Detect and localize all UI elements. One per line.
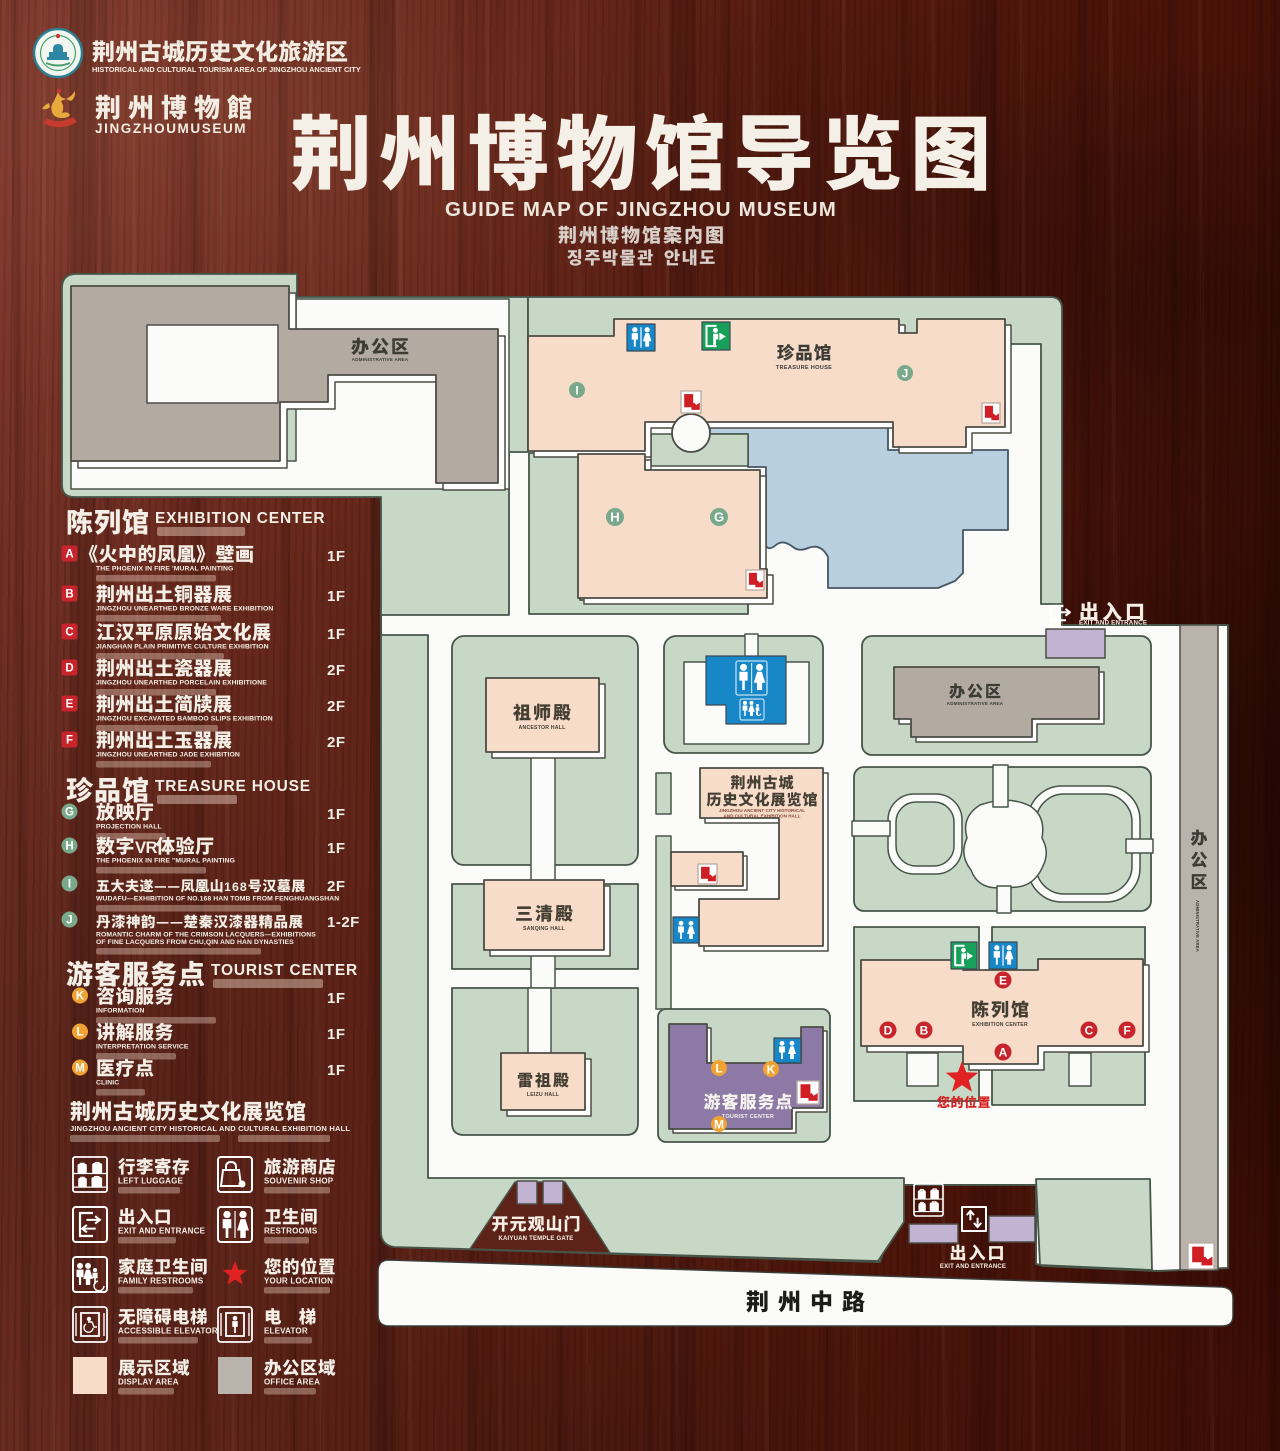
svg-text:JINGZHOU ANCIENT CITY HISTORIC: JINGZHOU ANCIENT CITY HISTORICAL — [719, 808, 805, 813]
svg-text:JINGZHOU UNEARTHED BRONZE WARE: JINGZHOU UNEARTHED BRONZE WARE EXHIBITIO… — [96, 606, 273, 613]
svg-text:8: 8 — [240, 880, 247, 894]
svg-text:1F: 1F — [327, 806, 346, 823]
svg-text:1F: 1F — [327, 990, 346, 1007]
svg-text:JINGZHOU UNEARTHED JADE EXHIBI: JINGZHOU UNEARTHED JADE EXHIBITION — [96, 752, 240, 759]
svg-text:DISPLAY AREA: DISPLAY AREA — [118, 1378, 179, 1387]
svg-text:ADMINISTRATIVE AREA: ADMINISTRATIVE AREA — [1195, 900, 1200, 952]
svg-text:H: H — [610, 510, 619, 525]
svg-text:THE PHOENIX IN FIRE 'MURAL PAI: THE PHOENIX IN FIRE 'MURAL PAINTING — [96, 566, 233, 573]
svg-text:HISTORICAL AND CULTURAL TOURIS: HISTORICAL AND CULTURAL TOURISM AREA OF … — [92, 65, 361, 74]
svg-text:J: J — [902, 366, 909, 380]
svg-text:FAMILY RESTROOMS: FAMILY RESTROOMS — [118, 1277, 204, 1286]
svg-text:1F: 1F — [327, 548, 346, 565]
svg-text:1-2F: 1-2F — [327, 914, 360, 931]
svg-text:KAIYUAN TEMPLE GATE: KAIYUAN TEMPLE GATE — [498, 1236, 573, 1242]
svg-text:ACCESSIBLE ELEVATOR: ACCESSIBLE ELEVATOR — [118, 1327, 218, 1336]
svg-text:ROMANTIC CHARM OF THE CRIMSON: ROMANTIC CHARM OF THE CRIMSON LACQUERS—E… — [96, 932, 316, 939]
svg-text:1F: 1F — [327, 588, 346, 605]
svg-text:K: K — [767, 1062, 776, 1076]
svg-text:K: K — [76, 991, 85, 1003]
svg-text:EXHIBITION CENTER: EXHIBITION CENTER — [972, 1022, 1028, 1028]
svg-text:EXIT AND ENTRANCE: EXIT AND ENTRANCE — [1079, 620, 1147, 627]
svg-text:A: A — [999, 1045, 1008, 1059]
svg-text:OF FINE LACQUERS FROM CHU,QIN: OF FINE LACQUERS FROM CHU,QIN AND HAN DY… — [96, 939, 294, 946]
svg-text:2F: 2F — [327, 698, 346, 715]
svg-text:2F: 2F — [327, 878, 346, 895]
svg-text:B: B — [920, 1023, 929, 1037]
svg-text:1F: 1F — [327, 1062, 346, 1079]
svg-text:TREASURE HOUSE: TREASURE HOUSE — [155, 778, 311, 795]
svg-text:JINGZHOU EXCAVATED BAMBOO SLIP: JINGZHOU EXCAVATED BAMBOO SLIPS EXHIBITI… — [96, 716, 273, 723]
svg-text:J: J — [66, 915, 72, 927]
svg-text:TREASURE HOUSE: TREASURE HOUSE — [776, 365, 832, 371]
svg-text:M: M — [714, 1117, 724, 1131]
svg-text:SOUVENIR SHOP: SOUVENIR SHOP — [264, 1177, 334, 1186]
svg-text:EXIT AND ENTRANCE: EXIT AND ENTRANCE — [118, 1227, 206, 1236]
svg-text:C: C — [1085, 1023, 1094, 1037]
svg-text:TOURIST CENTER: TOURIST CENTER — [211, 962, 358, 979]
svg-text:1F: 1F — [327, 840, 346, 857]
svg-text:GUIDE MAP OF JINGZHOU MUSEUM: GUIDE MAP OF JINGZHOU MUSEUM — [445, 198, 837, 221]
svg-text:M: M — [75, 1063, 85, 1075]
svg-text:E: E — [999, 973, 1007, 987]
svg-text:2F: 2F — [327, 734, 346, 751]
svg-text:THE PHOENIX IN FIRE "MURAL PAI: THE PHOENIX IN FIRE "MURAL PAINTING — [96, 858, 235, 865]
svg-text:6: 6 — [232, 880, 239, 894]
svg-text:TOURIST CENTER: TOURIST CENTER — [722, 1114, 774, 1120]
svg-text:OFFICE AREA: OFFICE AREA — [264, 1378, 320, 1387]
svg-text:ELEVATOR: ELEVATOR — [264, 1327, 308, 1336]
svg-text:R: R — [146, 838, 158, 857]
svg-text:ANCESTOR HALL: ANCESTOR HALL — [519, 725, 567, 731]
svg-text:B: B — [65, 589, 73, 601]
svg-text:1F: 1F — [327, 626, 346, 643]
svg-text:F: F — [66, 735, 73, 747]
svg-text:F: F — [1123, 1023, 1130, 1037]
svg-text:D: D — [884, 1023, 893, 1037]
svg-text:CLINIC: CLINIC — [96, 1080, 119, 1087]
svg-text:PROJECTION HALL: PROJECTION HALL — [96, 824, 162, 831]
svg-text:JINGZHOU UNEARTHED PORCELAIN E: JINGZHOU UNEARTHED PORCELAIN EXHIBITIONE — [96, 680, 267, 687]
svg-text:1: 1 — [224, 880, 231, 894]
svg-text:EXIT AND ENTRANCE: EXIT AND ENTRANCE — [940, 1264, 1006, 1270]
svg-text:ADMINISTRATIVE AREA: ADMINISTRATIVE AREA — [352, 357, 409, 362]
svg-text:INFORMATION: INFORMATION — [96, 1008, 145, 1015]
svg-text:L: L — [715, 1061, 722, 1075]
svg-text:EXHIBITION CENTER: EXHIBITION CENTER — [155, 510, 325, 527]
svg-text:JINGZHOUMUSEUM: JINGZHOUMUSEUM — [95, 121, 247, 136]
svg-text:SANQING HALL: SANQING HALL — [523, 926, 566, 932]
svg-text:E: E — [66, 699, 74, 711]
svg-text:RESTROOMS: RESTROOMS — [264, 1227, 318, 1236]
svg-text:JINGZHOU ANCIENT CITY HISTORIC: JINGZHOU ANCIENT CITY HISTORICAL AND CUL… — [70, 1124, 350, 1133]
svg-text:LEFT LUGGAGE: LEFT LUGGAGE — [118, 1177, 184, 1186]
svg-text:WUDAFU—EXHIBITION OF NO.168 HA: WUDAFU—EXHIBITION OF NO.168 HAN TOMB FRO… — [96, 896, 339, 903]
svg-text:C: C — [65, 627, 73, 639]
svg-text:D: D — [65, 663, 73, 675]
svg-text:I: I — [68, 879, 71, 891]
svg-text:G: G — [65, 807, 74, 819]
svg-text:L: L — [76, 1027, 83, 1039]
svg-text:ADMINISTRATIVE AREA: ADMINISTRATIVE AREA — [947, 701, 1004, 706]
svg-text:2F: 2F — [327, 662, 346, 679]
svg-text:INTERPRETATION SERVICE: INTERPRETATION SERVICE — [96, 1044, 189, 1051]
svg-text:YOUR LOCATION: YOUR LOCATION — [264, 1277, 333, 1286]
svg-text:A: A — [65, 549, 73, 561]
svg-text:LEIZU HALL: LEIZU HALL — [527, 1092, 560, 1098]
svg-text:I: I — [575, 383, 578, 397]
svg-text:G: G — [714, 510, 724, 525]
svg-text:1F: 1F — [327, 1026, 346, 1043]
svg-text:H: H — [65, 841, 73, 853]
svg-text:AND CULTURAL EXHIBITION HALL: AND CULTURAL EXHIBITION HALL — [724, 814, 801, 819]
svg-text:JIANGHAN PLAIN PRIMITIVE CULTU: JIANGHAN PLAIN PRIMITIVE CULTURE EXHIBIT… — [96, 644, 269, 651]
